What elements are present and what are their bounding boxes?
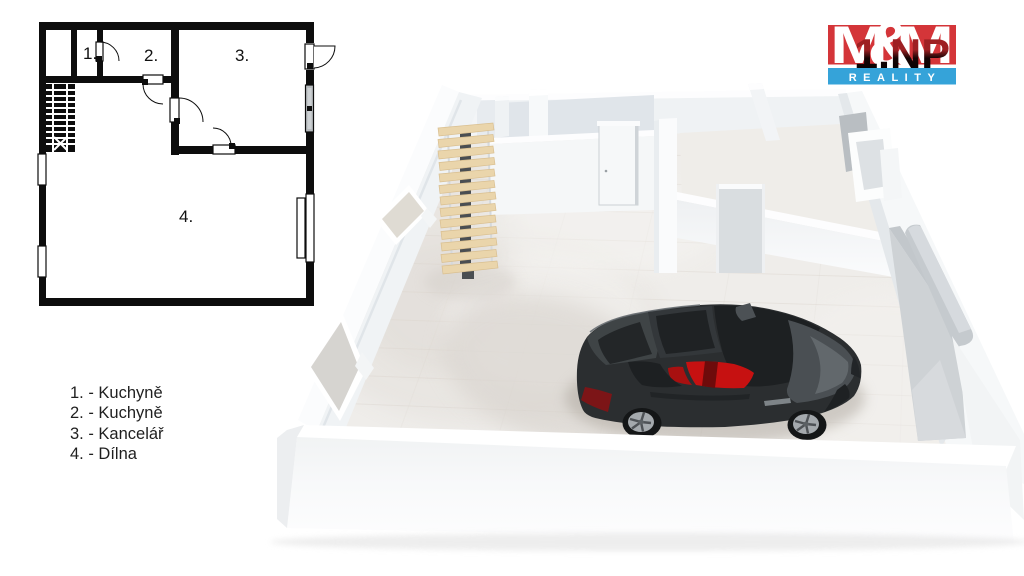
svg-text:4.: 4. <box>179 207 193 226</box>
svg-text:3.: 3. <box>235 46 249 65</box>
svg-text:2.: 2. <box>144 46 158 65</box>
svg-text:3. - Kancelář: 3. - Kancelář <box>70 425 164 443</box>
svg-text:2. - Kuchyně: 2. - Kuchyně <box>70 404 163 422</box>
svg-text:1.NP: 1.NP <box>854 30 950 77</box>
svg-text:1.: 1. <box>83 44 97 63</box>
svg-text:1. - Kuchyně: 1. - Kuchyně <box>70 384 163 402</box>
svg-text:4. - Dílna: 4. - Dílna <box>70 445 138 463</box>
